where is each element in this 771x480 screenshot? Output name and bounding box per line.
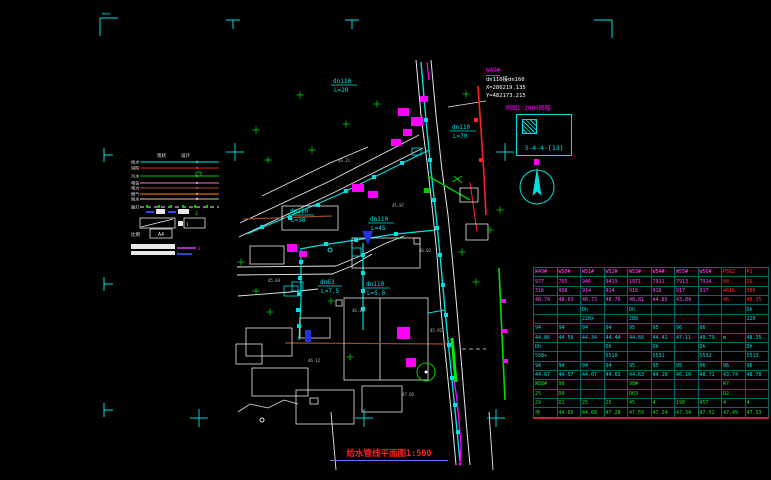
callout-x: X=286219.135 bbox=[486, 84, 526, 92]
table-cell: 地 bbox=[534, 408, 558, 418]
map-rect bbox=[398, 108, 409, 116]
pipe-fitting-icon bbox=[361, 289, 365, 293]
table-cell bbox=[675, 305, 699, 314]
map-rect bbox=[206, 205, 208, 208]
table-cell: 44.86 bbox=[534, 333, 558, 342]
pipe-fitting-icon bbox=[424, 118, 428, 122]
table-cell: 47.49 bbox=[722, 408, 746, 418]
table-cell: 47.24 bbox=[651, 408, 675, 418]
table-cell: 5532 bbox=[698, 352, 722, 361]
table-row: 25D0D03D2 bbox=[534, 389, 769, 398]
table-cell: 765 bbox=[557, 277, 581, 286]
table-row: 地44.6544.6847.2847.5947.2447.3447.5247.4… bbox=[534, 408, 769, 418]
table-cell bbox=[604, 305, 628, 314]
table-cell bbox=[675, 314, 699, 323]
table-cell: 4 bbox=[745, 399, 769, 408]
table-cell: 94 bbox=[581, 361, 605, 370]
pipe-label: L=45 bbox=[371, 225, 386, 232]
table-cell: 48.81 bbox=[628, 296, 652, 305]
legend-glyph: 1 bbox=[186, 222, 189, 227]
table-row: 29D1252545419045744 bbox=[534, 399, 769, 408]
table-cell bbox=[581, 342, 605, 351]
table-cell bbox=[722, 305, 746, 314]
map-polyline bbox=[499, 268, 505, 400]
spot-elevation: 46.02 bbox=[419, 248, 432, 253]
spot-elevation: 45.64 bbox=[268, 278, 281, 283]
map-rect bbox=[414, 238, 420, 244]
table-cell: 7914 bbox=[698, 277, 722, 286]
table-cell: P562 bbox=[722, 268, 746, 277]
coordinate-callout: W49# dn110接dn160 X=286219.135 Y=482173.2… bbox=[486, 67, 526, 100]
spot-elevation: 46.21 bbox=[338, 158, 351, 163]
map-circle bbox=[196, 193, 198, 195]
pipe-fitting-icon bbox=[299, 260, 303, 264]
table-cell: 946 bbox=[581, 277, 605, 286]
pipe-fitting-icon bbox=[394, 232, 398, 236]
pipe-fitting-icon bbox=[438, 253, 442, 257]
table-cell: W56# bbox=[698, 268, 722, 277]
table-cell bbox=[698, 389, 722, 398]
pipe-fitting-icon bbox=[344, 189, 348, 193]
table-cell bbox=[581, 389, 605, 398]
table-cell: 47.11 bbox=[675, 333, 699, 342]
table-cell bbox=[534, 305, 558, 314]
spot-elevation: 45.91 bbox=[430, 328, 443, 333]
table-cell: 25 bbox=[534, 389, 558, 398]
pipe-label: L=70 bbox=[453, 133, 468, 140]
table-cell: 44.57 bbox=[557, 370, 581, 379]
table-cell: 9419 bbox=[604, 277, 628, 286]
map-rect bbox=[182, 205, 184, 208]
pipe-fitting-icon bbox=[361, 271, 365, 275]
table-cell bbox=[675, 352, 699, 361]
map-rect bbox=[352, 184, 364, 192]
table-cell: D2 bbox=[722, 389, 746, 398]
map-polygon bbox=[533, 167, 542, 196]
table-cell: D03 bbox=[628, 389, 652, 398]
map-rect bbox=[170, 205, 172, 208]
map-rect bbox=[299, 251, 307, 257]
pipe-fitting-icon bbox=[260, 225, 264, 229]
legend-label: 污水 bbox=[131, 173, 140, 180]
table-cell: 1971 bbox=[628, 277, 652, 286]
pipe-label: dn110 bbox=[290, 208, 308, 215]
detail-index-note: 测图1:2000图幅 bbox=[505, 103, 551, 112]
table-cell: 94 bbox=[534, 324, 558, 333]
table-cell bbox=[722, 342, 746, 351]
map-rect bbox=[296, 390, 354, 424]
map-rect bbox=[236, 344, 262, 364]
spot-elevation: 46.35 bbox=[352, 308, 365, 313]
table-cell: 48.74 bbox=[534, 296, 558, 305]
table-cell: 44.34 bbox=[581, 333, 605, 342]
table-cell: 95 bbox=[628, 361, 652, 370]
legend-label: 电力 bbox=[131, 185, 139, 192]
map-polyline bbox=[237, 266, 336, 267]
pipe-fitting-icon bbox=[372, 175, 376, 179]
map-rect bbox=[336, 300, 342, 306]
table-cell: 44.56 bbox=[557, 333, 581, 342]
table-cell: 43.74 bbox=[722, 370, 746, 379]
table-cell: 44.68 bbox=[628, 333, 652, 342]
map-polyline bbox=[240, 135, 419, 223]
map-polyline bbox=[448, 101, 486, 107]
table-cell: 288 bbox=[628, 314, 652, 323]
table-cell: 46 bbox=[722, 296, 746, 305]
map-rect bbox=[178, 221, 183, 226]
map-rect bbox=[424, 188, 430, 193]
drawing-title: 给水管线平面图1:500 bbox=[330, 447, 448, 461]
table-cell: 5531 bbox=[651, 352, 675, 361]
table-cell: W88# bbox=[534, 380, 558, 389]
table-cell bbox=[557, 305, 581, 314]
map-polyline bbox=[427, 62, 429, 80]
table-cell: 998 bbox=[557, 286, 581, 295]
table-cell: Dh bbox=[651, 342, 675, 351]
table-row: W88#9898#W7 bbox=[534, 380, 769, 389]
pipe-fitting-icon bbox=[354, 238, 358, 242]
table-cell: 45 bbox=[628, 399, 652, 408]
table-cell: 95 bbox=[651, 361, 675, 370]
table-cell bbox=[651, 380, 675, 389]
table-cell: 47.53 bbox=[745, 408, 769, 418]
pipe-fitting-icon bbox=[450, 376, 454, 380]
table-cell: 48.79 bbox=[698, 333, 722, 342]
map-rect bbox=[406, 358, 416, 367]
map-circle bbox=[260, 418, 264, 422]
table-cell bbox=[604, 389, 628, 398]
table-cell: 7911 bbox=[651, 277, 675, 286]
table-row: 44.6744.5744.0744.6344.6344.1046.1048.71… bbox=[534, 370, 769, 379]
pipe-label: dn110 bbox=[333, 78, 351, 85]
legend-sheet-size: A4 bbox=[158, 232, 164, 238]
table-cell: 25 bbox=[581, 399, 605, 408]
table-cell: 96 bbox=[698, 361, 722, 370]
table-cell: 558+ bbox=[534, 352, 558, 361]
pipe-fitting-icon bbox=[441, 283, 445, 287]
legend-label: 给水 bbox=[131, 159, 140, 166]
legend-header: 设计 bbox=[181, 152, 190, 159]
table-cell bbox=[675, 389, 699, 398]
pipe-fitting-icon bbox=[447, 343, 451, 347]
table-cell: 977 bbox=[534, 277, 558, 286]
pipe-label: L=30 bbox=[291, 217, 306, 224]
hatch-icon bbox=[522, 119, 537, 134]
table-cell: Dh bbox=[534, 342, 558, 351]
map-polyline bbox=[478, 86, 486, 215]
detail-index-label: 3-4-4-[13] bbox=[517, 144, 571, 152]
table-cell: 48.63 bbox=[557, 296, 581, 305]
map-circle bbox=[328, 248, 332, 252]
map-circle bbox=[196, 198, 198, 200]
table-cell: 25 bbox=[604, 399, 628, 408]
elevation-table-grid: W49#W50#W51#W52#W53#W54#W55#W56#P562P197… bbox=[533, 267, 769, 419]
table-cell: Dh bbox=[604, 342, 628, 351]
table-cell: 316 bbox=[534, 286, 558, 295]
table-cell: 2U bbox=[745, 277, 769, 286]
pipe-fitting-icon bbox=[297, 292, 301, 296]
table-cell: 95 bbox=[628, 324, 652, 333]
pipe-label: L=7.5 bbox=[321, 288, 339, 295]
map-rect bbox=[300, 318, 330, 338]
legend-glyph: £ bbox=[195, 211, 198, 217]
pipe-fitting-icon bbox=[444, 313, 448, 317]
map-circle bbox=[196, 167, 198, 169]
table-cell: 44.10 bbox=[651, 370, 675, 379]
map-rect bbox=[287, 244, 297, 252]
detail-index-box: 3-4-4-[13] bbox=[516, 114, 572, 156]
pipe-fitting-icon bbox=[428, 158, 432, 162]
table-cell: 396 bbox=[745, 286, 769, 295]
table-cell: 44.07 bbox=[581, 370, 605, 379]
map-rect bbox=[178, 209, 189, 214]
legend-label: 雨水 bbox=[131, 196, 140, 203]
table-cell bbox=[534, 314, 558, 323]
map-polyline bbox=[331, 412, 336, 470]
map-polyline bbox=[489, 412, 493, 470]
map-polyline bbox=[336, 236, 404, 266]
map-rect bbox=[305, 330, 311, 342]
table-cell: 29 bbox=[534, 399, 558, 408]
table-row: 97776594694191971791179137914842U bbox=[534, 277, 769, 286]
table-cell: 914 bbox=[604, 286, 628, 295]
pipe-label: dn110 bbox=[452, 124, 470, 131]
table-row: DhDhDhDhDh bbox=[534, 342, 769, 351]
table-cell: 914 bbox=[581, 286, 605, 295]
cad-canvas: 现状设计给水消防污水电信电力燃气雨水路灯£1比例A4£0650dn110L=20… bbox=[0, 0, 771, 480]
table-cell bbox=[651, 305, 675, 314]
map-rect bbox=[194, 205, 196, 208]
callout-pipe: dn110接dn160 bbox=[486, 76, 526, 84]
pipe-fitting-icon bbox=[297, 324, 301, 328]
pipe-fitting-icon bbox=[435, 226, 439, 230]
table-cell: 228+ bbox=[581, 314, 605, 323]
table-row: DhDhDh bbox=[534, 305, 769, 314]
table-cell: 94 bbox=[557, 361, 581, 370]
map-line bbox=[285, 343, 452, 344]
pipe-fitting-icon bbox=[456, 430, 460, 434]
map-line bbox=[470, 182, 477, 232]
map-rect bbox=[246, 328, 292, 356]
table-cell: W50# bbox=[557, 268, 581, 277]
map-rect bbox=[502, 329, 507, 333]
pipe-fitting-icon bbox=[316, 203, 320, 207]
table-cell bbox=[745, 324, 769, 333]
table-cell: 44.85 bbox=[651, 296, 675, 305]
table-cell: W49# bbox=[534, 268, 558, 277]
table-cell: 44.41 bbox=[651, 333, 675, 342]
callout-y: Y=482173.215 bbox=[486, 92, 526, 100]
table-cell: 48.78 bbox=[745, 370, 769, 379]
legend-label: 比例 bbox=[131, 231, 140, 238]
map-circle bbox=[196, 161, 198, 163]
table-cell bbox=[628, 342, 652, 351]
sheet-corner-label: 0650 bbox=[102, 12, 110, 16]
table-cell: 44.67 bbox=[534, 370, 558, 379]
map-rect bbox=[534, 159, 539, 165]
table-cell: 4 bbox=[722, 399, 746, 408]
table-row: 94949494959595969696 bbox=[534, 361, 769, 370]
table-row: W49#W50#W51#W52#W53#W54#W55#W56#P562P1 bbox=[534, 268, 769, 277]
map-rect bbox=[250, 246, 284, 264]
table-cell: 43.84 bbox=[675, 296, 699, 305]
table-cell: 46.10 bbox=[675, 370, 699, 379]
table-cell bbox=[722, 324, 746, 333]
table-cell: 44.63 bbox=[628, 370, 652, 379]
elevation-table: W49#W50#W51#W52#W53#W54#W55#W56#P562P197… bbox=[533, 267, 769, 419]
table-row: 228+288220 bbox=[534, 314, 769, 323]
table-cell bbox=[698, 305, 722, 314]
table-cell: 98 bbox=[557, 380, 581, 389]
table-cell bbox=[722, 352, 746, 361]
table-cell: P1 bbox=[745, 268, 769, 277]
table-cell: 95 bbox=[651, 324, 675, 333]
table-cell: 917 bbox=[698, 286, 722, 295]
table-cell: W51# bbox=[581, 268, 605, 277]
map-rect bbox=[403, 129, 412, 136]
map-rect bbox=[397, 327, 410, 339]
pipe-label: L=20 bbox=[334, 87, 349, 94]
table-cell: 94 bbox=[557, 324, 581, 333]
table-cell: 917 bbox=[675, 286, 699, 295]
table-cell bbox=[581, 352, 605, 361]
map-rect bbox=[362, 386, 402, 412]
pipe-label: dn110 bbox=[366, 281, 384, 288]
pipe-fitting-icon bbox=[453, 403, 457, 407]
table-cell: Dh bbox=[628, 305, 652, 314]
map-line bbox=[141, 219, 173, 227]
table-row: 44.8644.5644.3444.4444.6844.4147.1148.79… bbox=[534, 333, 769, 342]
callout-station: W49# bbox=[486, 67, 500, 76]
table-cell: W53# bbox=[628, 268, 652, 277]
map-rect bbox=[158, 205, 160, 208]
table-cell bbox=[557, 342, 581, 351]
legend-label: 消防 bbox=[131, 165, 139, 172]
table-cell bbox=[745, 389, 769, 398]
table-cell: 5510 bbox=[604, 352, 628, 361]
map-circle bbox=[196, 187, 198, 189]
table-cell: D0 bbox=[557, 389, 581, 398]
pipe-fitting-icon bbox=[324, 242, 328, 246]
table-cell bbox=[698, 314, 722, 323]
table-cell: 4 bbox=[651, 399, 675, 408]
map-polyline bbox=[238, 400, 298, 412]
table-cell: 44.68 bbox=[581, 408, 605, 418]
table-cell bbox=[557, 314, 581, 323]
map-rect bbox=[474, 118, 478, 122]
map-rect bbox=[252, 368, 308, 396]
table-cell: 47.59 bbox=[628, 408, 652, 418]
table-cell: 47.28 bbox=[604, 408, 628, 418]
table-cell: Dh bbox=[698, 342, 722, 351]
table-cell: 96 bbox=[698, 324, 722, 333]
map-rect bbox=[503, 359, 508, 363]
table-cell: 48.35 bbox=[745, 296, 769, 305]
table-cell: 48.71 bbox=[698, 370, 722, 379]
table-cell: 190 bbox=[675, 399, 699, 408]
table-cell: 44.63 bbox=[604, 370, 628, 379]
map-polyline bbox=[239, 148, 423, 237]
spot-elevation: 45.87 bbox=[392, 203, 405, 208]
table-cell: W52# bbox=[604, 268, 628, 277]
table-cell: Dh bbox=[581, 305, 605, 314]
map-rect bbox=[411, 117, 423, 126]
table-cell: 48.73 bbox=[581, 296, 605, 305]
table-cell: 47.52 bbox=[698, 408, 722, 418]
table-cell: m bbox=[722, 333, 746, 342]
table-cell bbox=[581, 380, 605, 389]
table-cell: W55# bbox=[675, 268, 699, 277]
table-cell bbox=[557, 352, 581, 361]
map-rect bbox=[310, 398, 318, 404]
table-cell: 44.65 bbox=[557, 408, 581, 418]
table-cell: 94 bbox=[534, 361, 558, 370]
table-cell: 47.34 bbox=[675, 408, 699, 418]
table-cell: 96 bbox=[745, 361, 769, 370]
table-cell: W54# bbox=[651, 268, 675, 277]
map-rect bbox=[131, 251, 175, 255]
map-rect bbox=[420, 96, 428, 102]
map-rect bbox=[352, 248, 361, 256]
table-cell: 4616 bbox=[722, 286, 746, 295]
table-cell bbox=[675, 380, 699, 389]
table-cell: 95 bbox=[675, 361, 699, 370]
legend-label: 路灯 bbox=[131, 204, 140, 211]
map-rect bbox=[391, 139, 401, 146]
table-cell: W7 bbox=[722, 380, 746, 389]
table-cell bbox=[604, 380, 628, 389]
table-cell: Dh bbox=[745, 342, 769, 351]
table-cell bbox=[722, 314, 746, 323]
table-cell: Dh bbox=[745, 305, 769, 314]
spot-elevation: 46.12 bbox=[308, 358, 321, 363]
spot-elevation: 47.05 bbox=[402, 392, 415, 397]
pipe-label: L=5.0 bbox=[367, 290, 385, 297]
table-cell: 94 bbox=[581, 324, 605, 333]
table-cell: 48.35 bbox=[745, 333, 769, 342]
table-cell: 94 bbox=[604, 361, 628, 370]
table-cell: 84 bbox=[722, 277, 746, 286]
table-cell: D1 bbox=[557, 399, 581, 408]
pipe-fitting-icon bbox=[361, 253, 365, 257]
pipe-label: dn110 bbox=[370, 216, 388, 223]
table-row: 48.7448.6348.7348.7648.8144.8543.844648.… bbox=[534, 296, 769, 305]
map-line bbox=[452, 338, 456, 382]
map-circle bbox=[425, 371, 428, 374]
table-row: 3169989149149189169179174616396 bbox=[534, 286, 769, 295]
table-cell: 5513 bbox=[745, 352, 769, 361]
map-circle bbox=[196, 175, 198, 177]
table-row: 9494949495959696 bbox=[534, 324, 769, 333]
pipe-fitting-icon bbox=[400, 161, 404, 165]
map-rect bbox=[368, 191, 378, 198]
table-cell: 94 bbox=[604, 324, 628, 333]
table-cell: 96 bbox=[722, 361, 746, 370]
map-polyline bbox=[428, 310, 445, 313]
map-polyline bbox=[238, 289, 318, 296]
table-cell: 457 bbox=[698, 399, 722, 408]
map-rect bbox=[156, 209, 165, 214]
table-row: 558+5510553155325513 bbox=[534, 352, 769, 361]
table-cell bbox=[698, 296, 722, 305]
table-cell bbox=[698, 380, 722, 389]
pipe-fitting-icon bbox=[296, 308, 300, 312]
pipe-fitting-icon bbox=[298, 276, 302, 280]
table-cell bbox=[675, 342, 699, 351]
map-rect bbox=[131, 244, 175, 249]
pipe-fitting-icon bbox=[432, 198, 436, 202]
map-rect bbox=[501, 299, 506, 303]
